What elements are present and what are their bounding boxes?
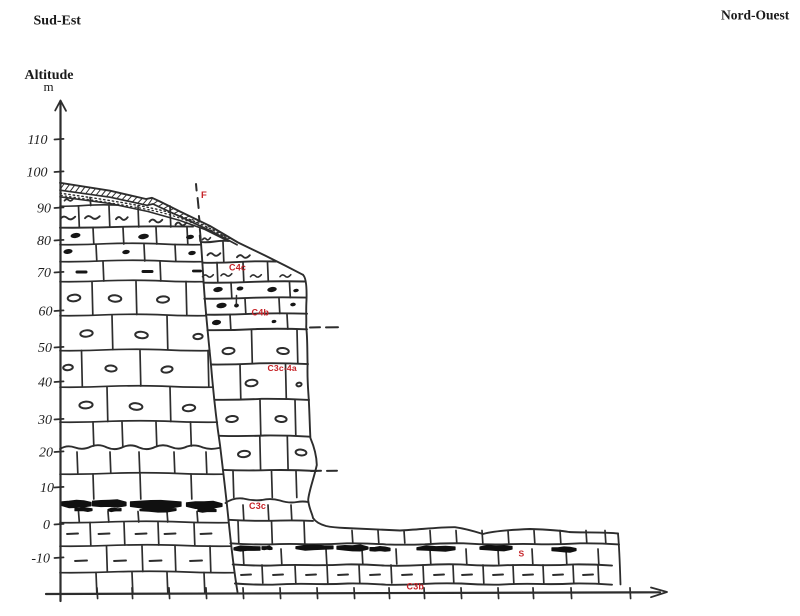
svg-text:110: 110 xyxy=(28,133,48,148)
svg-text:S: S xyxy=(519,549,525,559)
svg-text:F: F xyxy=(201,190,207,201)
svg-text:10: 10 xyxy=(40,481,54,496)
svg-text:-10: -10 xyxy=(31,552,50,567)
svg-text:80: 80 xyxy=(37,234,51,249)
svg-text:Nord-Ouest: Nord-Ouest xyxy=(721,8,790,23)
svg-text:100: 100 xyxy=(27,166,48,181)
svg-text:0: 0 xyxy=(43,518,50,533)
svg-text:90: 90 xyxy=(37,202,51,217)
svg-text:m: m xyxy=(44,79,54,94)
svg-text:50: 50 xyxy=(38,341,52,356)
svg-text:60: 60 xyxy=(39,305,53,320)
svg-text:20: 20 xyxy=(39,446,53,461)
svg-text:70: 70 xyxy=(37,266,51,281)
svg-text:C3c-4a: C3c-4a xyxy=(268,363,297,373)
svg-text:Sud-Est: Sud-Est xyxy=(34,14,82,29)
svg-text:30: 30 xyxy=(37,413,52,428)
svg-text:C4c: C4c xyxy=(229,263,246,273)
svg-text:C4b: C4b xyxy=(252,308,270,318)
svg-text:C3b: C3b xyxy=(407,582,425,592)
svg-text:C3c: C3c xyxy=(249,501,266,511)
svg-text:40: 40 xyxy=(38,376,52,391)
